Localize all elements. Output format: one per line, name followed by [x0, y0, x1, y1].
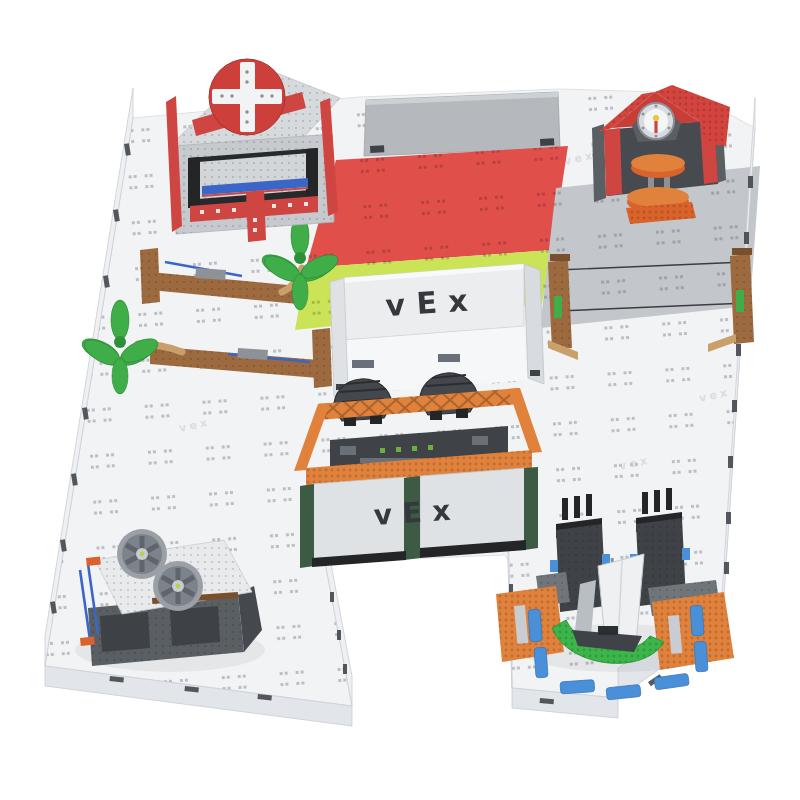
- gauge: [638, 103, 674, 139]
- dam-vex-logo: vEx: [373, 493, 462, 532]
- product-render-stage: vex vex vex vex vex vex vex: [0, 0, 800, 800]
- hospital-building: [166, 59, 340, 242]
- backdrop-panel: [364, 92, 560, 156]
- enclosure-vex-logo: vEx: [384, 282, 480, 323]
- red-mat: [306, 146, 568, 268]
- dam-front: vEx: [300, 450, 538, 568]
- firehouse-corner-post-left: [592, 124, 606, 202]
- fan-wheel: [153, 561, 203, 611]
- vex-field-scene: vex vex vex vex vex vex vex: [0, 0, 800, 800]
